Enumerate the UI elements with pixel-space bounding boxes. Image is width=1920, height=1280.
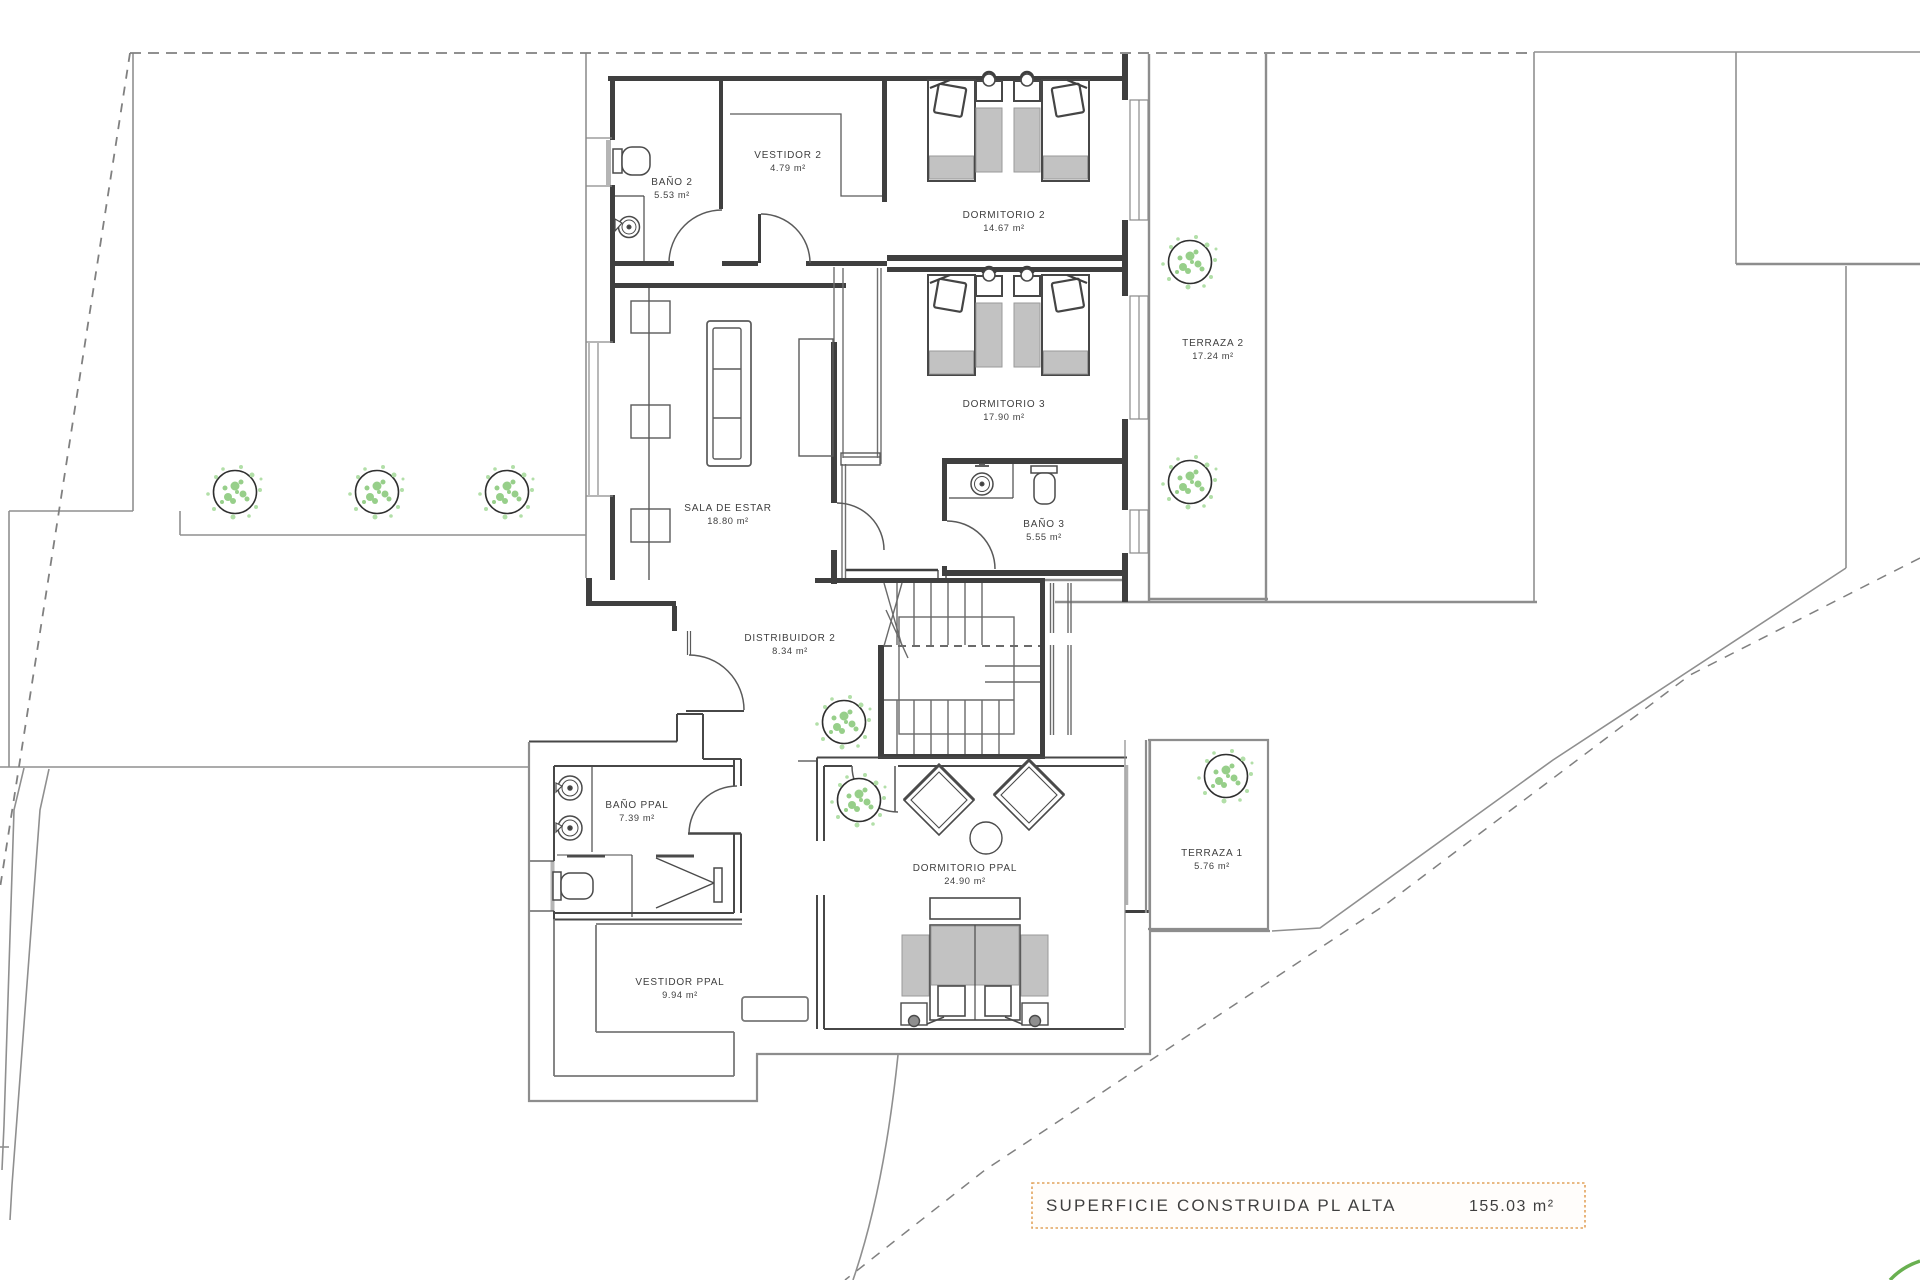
svg-text:5.53 m²: 5.53 m²: [654, 190, 690, 200]
svg-text:24.90 m²: 24.90 m²: [944, 876, 986, 886]
svg-text:VESTIDOR PPAL: VESTIDOR PPAL: [635, 977, 724, 988]
svg-text:SALA DE ESTAR: SALA DE ESTAR: [684, 503, 771, 514]
svg-text:DISTRIBUIDOR 2: DISTRIBUIDOR 2: [744, 633, 835, 644]
svg-text:DORMITORIO PPAL: DORMITORIO PPAL: [913, 863, 1017, 874]
svg-text:14.67 m²: 14.67 m²: [983, 223, 1025, 233]
svg-text:DORMITORIO 2: DORMITORIO 2: [963, 210, 1046, 221]
svg-text:5.55 m²: 5.55 m²: [1026, 532, 1062, 542]
svg-text:5.76 m²: 5.76 m²: [1194, 861, 1230, 871]
svg-text:TERRAZA 2: TERRAZA 2: [1182, 338, 1244, 349]
svg-text:TERRAZA 1: TERRAZA 1: [1181, 848, 1243, 859]
svg-text:7.39 m²: 7.39 m²: [619, 813, 655, 823]
svg-text:17.90 m²: 17.90 m²: [983, 412, 1025, 422]
svg-text:155.03 m²: 155.03 m²: [1469, 1198, 1555, 1215]
svg-text:DORMITORIO 3: DORMITORIO 3: [963, 399, 1046, 410]
svg-text:4.79 m²: 4.79 m²: [770, 163, 806, 173]
svg-text:BAÑO PPAL: BAÑO PPAL: [605, 798, 668, 811]
svg-text:18.80 m²: 18.80 m²: [707, 516, 749, 526]
svg-text:SUPERFICIE CONSTRUIDA PL ALTA: SUPERFICIE CONSTRUIDA PL ALTA: [1046, 1196, 1397, 1215]
svg-text:BAÑO 3: BAÑO 3: [1023, 517, 1064, 530]
svg-text:17.24 m²: 17.24 m²: [1192, 351, 1234, 361]
svg-text:VESTIDOR 2: VESTIDOR 2: [754, 150, 821, 161]
svg-text:8.34 m²: 8.34 m²: [772, 646, 808, 656]
svg-text:9.94 m²: 9.94 m²: [662, 990, 698, 1000]
svg-text:BAÑO 2: BAÑO 2: [651, 175, 692, 188]
